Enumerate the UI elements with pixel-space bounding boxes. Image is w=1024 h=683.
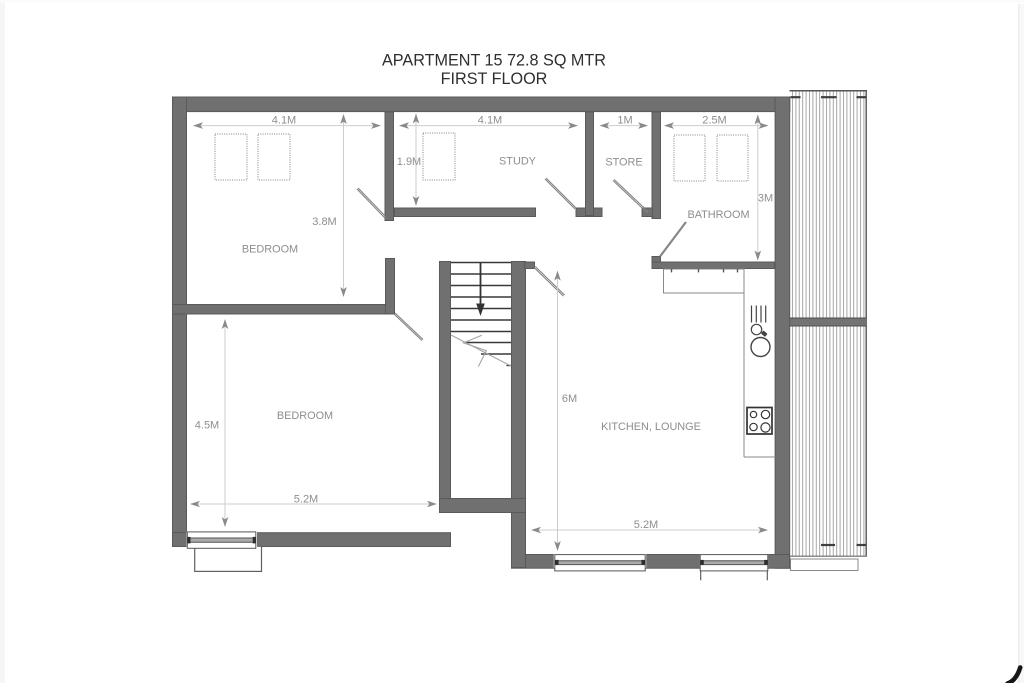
svg-text:FIRST FLOOR: FIRST FLOOR <box>441 70 548 88</box>
svg-text:6M: 6M <box>562 393 577 405</box>
svg-text:4.5M: 4.5M <box>195 420 219 432</box>
svg-text:4.1M: 4.1M <box>272 115 296 127</box>
svg-text:1M: 1M <box>617 115 632 127</box>
svg-text:STUDY: STUDY <box>499 156 537 168</box>
svg-text:1.9M: 1.9M <box>397 156 421 168</box>
svg-text:KITCHEN, LOUNGE: KITCHEN, LOUNGE <box>601 421 701 433</box>
svg-text:3.8M: 3.8M <box>312 216 336 228</box>
svg-text:BEDROOM: BEDROOM <box>242 244 298 256</box>
svg-text:5.2M: 5.2M <box>294 494 318 506</box>
svg-text:5.2M: 5.2M <box>634 519 658 531</box>
svg-text:4.1M: 4.1M <box>478 115 502 127</box>
svg-text:STORE: STORE <box>605 156 642 168</box>
svg-text:3M: 3M <box>758 193 773 205</box>
svg-text:2.5M: 2.5M <box>702 115 726 127</box>
svg-text:BATHROOM: BATHROOM <box>687 209 749 221</box>
svg-text:BEDROOM: BEDROOM <box>277 410 333 422</box>
svg-text:APARTMENT 15 72.8 SQ MTR: APARTMENT 15 72.8 SQ MTR <box>382 52 606 70</box>
